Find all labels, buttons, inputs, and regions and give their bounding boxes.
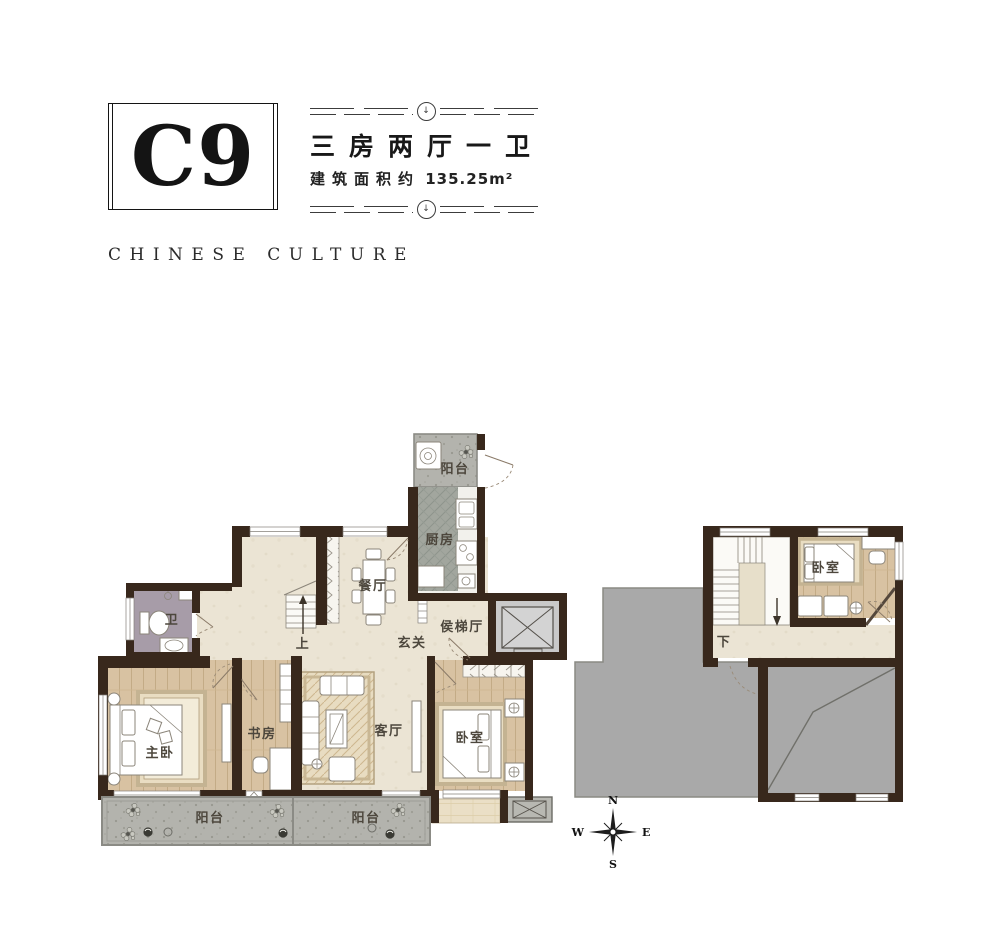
label-stairs-up: 上 <box>296 637 311 652</box>
label-bathroom: 卫 <box>165 613 180 628</box>
hall-closet <box>327 530 339 623</box>
elevator-shaft <box>496 601 559 654</box>
ac-platform <box>507 797 552 822</box>
stairs-down <box>713 537 790 626</box>
label-balcony-north: 阳台 <box>440 461 469 477</box>
main-plan <box>98 434 567 845</box>
label-balcony-sw: 阳台 <box>195 810 224 826</box>
compass-rose: N S W E <box>571 794 651 871</box>
south-balcony <box>102 797 430 845</box>
loft-plan <box>575 526 903 802</box>
floor-plan: 阳台 厨房 餐厅 卫 上 玄关 侯梯厅 主卧 书房 客厅 卧室 阳台 阳台 卧室… <box>0 0 1000 934</box>
label-balcony-se: 阳台 <box>351 810 380 826</box>
label-stairs-down: 下 <box>717 635 732 650</box>
label-kitchen: 厨房 <box>425 532 454 548</box>
label-foyer: 玄关 <box>397 635 426 651</box>
compass-w: W <box>571 826 585 839</box>
label-study: 书房 <box>247 726 276 742</box>
compass-e: E <box>642 826 650 839</box>
label-master-bedroom: 主卧 <box>145 745 174 761</box>
label-living-room: 客厅 <box>374 723 403 739</box>
label-loft-bedroom: 卧室 <box>811 560 840 576</box>
label-bedroom: 卧室 <box>455 730 484 746</box>
washer <box>416 442 441 469</box>
floorplan-page: C9 ↓ 三房两厅一卫 建筑面积约 135.25m² ↓ CHINESE CUL… <box>0 0 1000 934</box>
label-elevator-hall: 侯梯厅 <box>440 619 484 635</box>
compass-s: S <box>609 858 617 871</box>
compass-n: N <box>608 794 618 807</box>
label-dining: 餐厅 <box>357 578 387 594</box>
loft-hallway <box>712 625 895 658</box>
attic-room <box>768 662 895 793</box>
